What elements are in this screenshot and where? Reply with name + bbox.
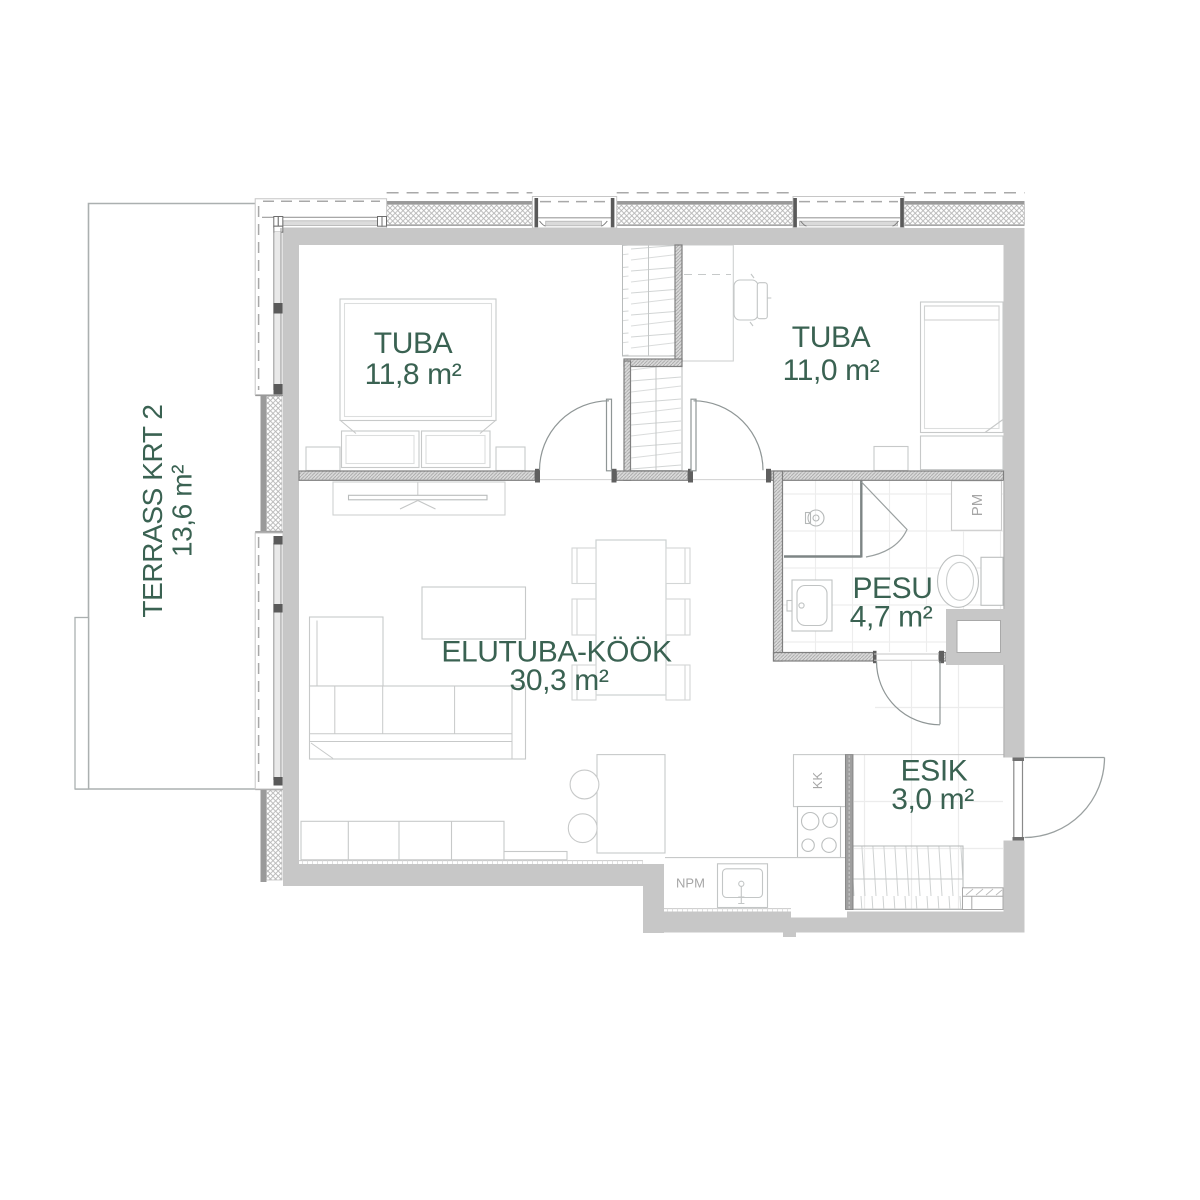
svg-text:NPM: NPM bbox=[676, 876, 705, 891]
svg-text:11,8 m²: 11,8 m² bbox=[365, 358, 462, 391]
svg-text:4,7 m²: 4,7 m² bbox=[850, 601, 933, 634]
svg-text:PM: PM bbox=[969, 494, 986, 517]
svg-text:30,3 m²: 30,3 m² bbox=[510, 664, 609, 697]
svg-text:3,0 m²: 3,0 m² bbox=[891, 783, 974, 816]
svg-text:11,0 m²: 11,0 m² bbox=[783, 354, 880, 387]
svg-text:TERRASS KRT 2: TERRASS KRT 2 bbox=[137, 404, 168, 617]
svg-text:KK: KK bbox=[810, 772, 825, 790]
svg-text:13,6 m²: 13,6 m² bbox=[167, 465, 198, 557]
svg-text:TUBA: TUBA bbox=[374, 327, 453, 360]
svg-text:TUBA: TUBA bbox=[792, 321, 871, 354]
